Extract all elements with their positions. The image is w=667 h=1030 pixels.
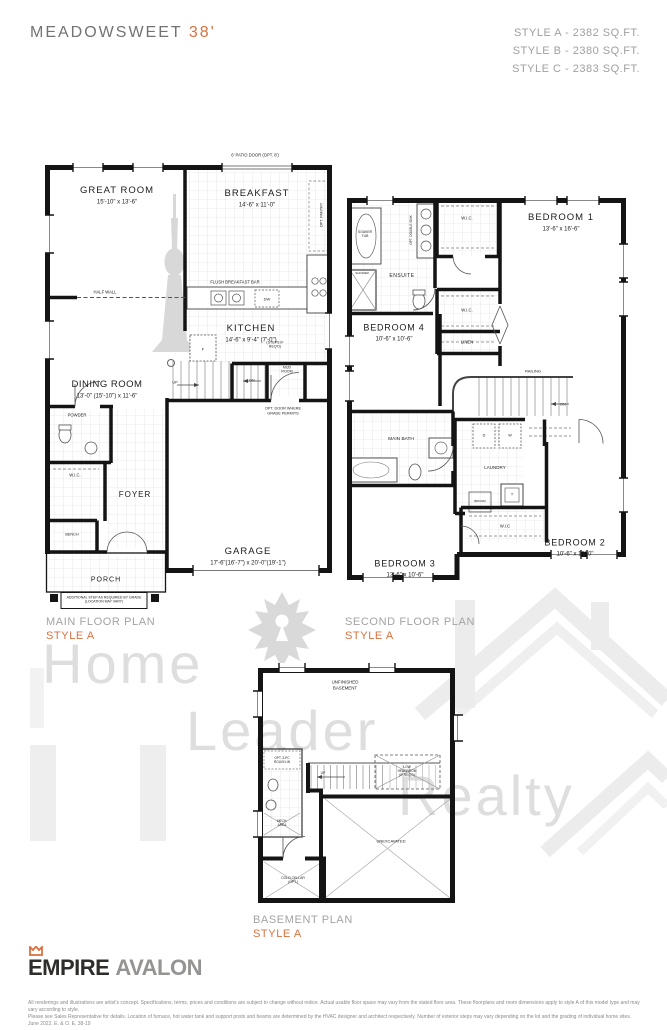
room-label: MUD ROOM (281, 366, 292, 375)
style-b-area: STYLE B - 2380 SQ.FT. (512, 42, 640, 60)
disclaimer: All renderings and illustrations are art… (28, 1000, 640, 1028)
room-label: T (511, 493, 513, 498)
style-a-area: STYLE A - 2382 SQ.FT. (512, 24, 640, 42)
room-label: BEDROOM 4 (363, 322, 424, 333)
room-label: 6' PATIO DOOR (OPT. 8') (231, 152, 279, 157)
room-label: RAILING (525, 369, 541, 374)
room-label: OPT. DOOR WHERE GRADE PERMITS (265, 406, 301, 415)
room-label: BEDROOM 1 (528, 212, 594, 224)
room-label: BREAKFAST (225, 188, 290, 200)
room-label: OPT. PANTRY (320, 203, 325, 228)
room-label: POWDER (68, 412, 87, 417)
second-floor-plan: BEDROOM 113'-6" x 16'-6"W.I.C.SOAKER TUB… (345, 196, 632, 588)
lot-width: 38' (189, 24, 216, 41)
room-label: W.I.C. (461, 307, 472, 312)
brand-avalon: AVALON (115, 955, 202, 980)
room-label: DW (264, 297, 271, 302)
room-label: W.I.C (500, 523, 510, 528)
room-label: W.I.C. (69, 472, 80, 477)
caption-style: STYLE A (46, 630, 155, 642)
room-label: W (508, 434, 512, 439)
room-label: BEDROOM 2 (544, 537, 605, 548)
room-label: D (483, 434, 486, 439)
caption-title: MAIN FLOOR PLAN (46, 616, 155, 628)
room-label: GREAT ROOM (80, 185, 154, 197)
room-label: ENSUITE (389, 273, 414, 279)
room-label: HALF WALL (93, 289, 116, 294)
room-label: DN (560, 403, 565, 408)
room-label: PORCH (91, 577, 121, 586)
room-label: LAUNDRY (484, 465, 505, 471)
disclaimer-line-2: Please see Sales Representative for deta… (28, 1014, 640, 1027)
basement-plan: UNFINISHED BASEMENTOPT. 3-PC ROUGH-INMEC… (253, 663, 463, 913)
watermark-word: Home (42, 636, 203, 692)
room-label: SOAKER TUB (358, 230, 372, 239)
disclaimer-line-1: All renderings and illustrations are art… (28, 1000, 640, 1013)
room-label: 17'-6"(16'-7") x 20'-0"(19'-1") (210, 560, 285, 568)
room-label: OPT. 3-PC ROUGH-IN (274, 756, 290, 764)
room-label: BEDROOM 3 (374, 558, 435, 569)
room-label: 12'-6" x 10'-6" (387, 572, 424, 580)
model-name: MEADOWSWEET (30, 24, 182, 41)
room-label: W.I.C. (461, 215, 472, 220)
room-label: MAIN BATH (388, 437, 414, 443)
room-label: 10'-6" x 13'-0" (557, 551, 594, 559)
builder-logo: EMPIREAVALON (28, 946, 202, 979)
main-floor-plan: GREAT ROOM15'-10" x 13'-6"BREAKFAST14'-6… (45, 163, 332, 613)
room-label: UP (321, 771, 326, 775)
room-label: OPT. DOUBLE SINK (409, 215, 413, 244)
room-label: DINING ROOM (72, 379, 143, 391)
room-label: DN (249, 379, 254, 384)
room-label: LINEN (461, 339, 473, 344)
basement-caption: BASEMENT PLAN STYLE A (253, 914, 353, 940)
room-label: BROOM (474, 500, 485, 504)
second-floor-drawing (345, 196, 632, 588)
room-label: UNFINISHED BASEMENT (332, 680, 359, 691)
main-floor-caption: MAIN FLOOR PLAN STYLE A (46, 616, 155, 642)
caption-title: SECOND FLOOR PLAN (345, 616, 475, 628)
room-label: F (202, 347, 204, 352)
room-label: 14'-6" x 11'-0" (239, 202, 275, 210)
room-label: (STEPS IF REQ'D) (266, 341, 283, 350)
room-label: ADDITIONAL STEP AS REQUIRED BY GRADE (LO… (67, 596, 142, 605)
model-title: MEADOWSWEET 38' (30, 24, 216, 42)
room-label: FOYER (119, 490, 152, 500)
caption-style: STYLE A (253, 928, 353, 940)
room-label: COLD CELLAR (OPT.) (281, 876, 305, 885)
room-label: FLUSH BREAKFAST BAR (210, 279, 259, 284)
room-label: 10'-6" x 10'-6" (376, 336, 413, 344)
room-label: UP (172, 381, 177, 386)
room-label: LOW HEADROOM (IF REQ'D) (398, 765, 417, 777)
room-label: KITCHEN (227, 323, 276, 335)
brand-empire: EMPIRE (28, 955, 109, 980)
room-label: MECH. AREA (277, 819, 287, 827)
style-c-area: STYLE C - 2383 SQ.FT. (512, 60, 640, 78)
room-label: 13'-6" x 16'-6" (543, 226, 580, 234)
caption-style: STYLE A (345, 630, 475, 642)
second-floor-caption: SECOND FLOOR PLAN STYLE A (345, 616, 475, 642)
room-label: SHOWER (355, 272, 369, 276)
room-label: 13'-0" (15'-10") x 11'-6" (77, 393, 138, 401)
floorplan-sheet: Home Leader Realty MEADOWSWEET 38' STYLE… (0, 0, 667, 1030)
style-area-list: STYLE A - 2382 SQ.FT. STYLE B - 2380 SQ.… (512, 24, 640, 78)
room-label: 15'-10" x 13'-6" (97, 199, 137, 207)
room-label: UNEXCAVATED (376, 839, 405, 844)
caption-title: BASEMENT PLAN (253, 914, 353, 926)
room-label: GARAGE (225, 546, 272, 558)
room-label: BENCH (65, 533, 78, 538)
